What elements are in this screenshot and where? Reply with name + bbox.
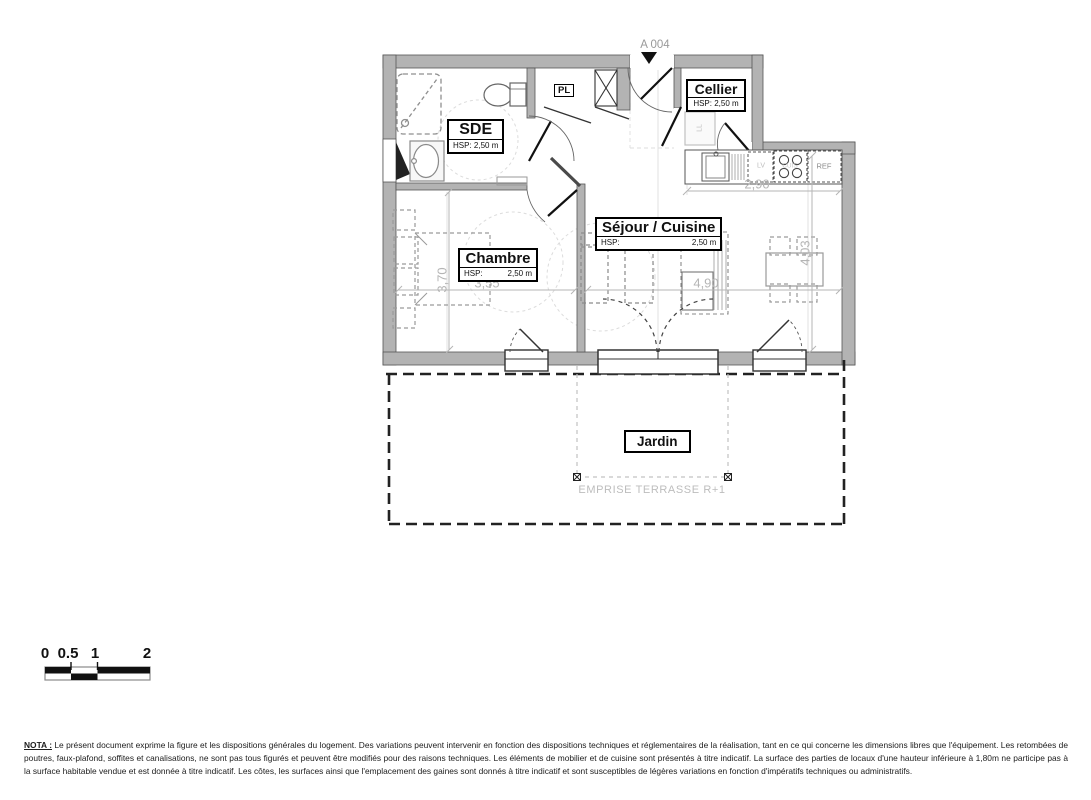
- room-name-sde: SDE: [449, 121, 502, 139]
- cooktop-label: CUIS: [782, 163, 798, 170]
- duct-shaft: [595, 70, 617, 106]
- sde-door: [529, 116, 574, 161]
- jardin-boundary: [386, 360, 845, 524]
- floor-plan-drawing: [0, 0, 1091, 800]
- walls: [383, 55, 855, 365]
- hsp-key-chambre: HSP:: [464, 269, 483, 279]
- room-label-chambre: Chambre HSP: 2,50 m: [458, 248, 538, 282]
- hsp-val-sejour: 2,50 m: [692, 238, 716, 248]
- scale-label-0: 0: [41, 645, 49, 662]
- dim-kitchen-width: 2,90: [744, 177, 769, 192]
- room-name-sejour: Séjour / Cuisine: [597, 219, 720, 236]
- hsp-key-sejour: HSP:: [601, 238, 620, 248]
- room-name-cellier: Cellier: [688, 81, 744, 97]
- dim-chambre-depth: 3,70: [435, 267, 450, 292]
- nota-body: Le présent document exprime la figure et…: [24, 740, 1068, 776]
- floor-plan-page: A 004 SDE HSP: 2,50 m Cellier HSP: 2,50 …: [0, 0, 1091, 800]
- dining-table: [766, 237, 823, 302]
- terrace-note: EMPRISE TERRASSE R+1: [578, 484, 725, 496]
- scale-label-1: 1: [91, 645, 99, 662]
- room-name-chambre: Chambre: [460, 250, 536, 267]
- closet-doors: [544, 107, 629, 123]
- room-hsp-sde: HSP: 2,50 m: [449, 139, 502, 152]
- dim-sejour-width: 4,90: [693, 276, 718, 291]
- room-label-sde: SDE HSP: 2,50 m: [447, 119, 504, 154]
- entrance-door: [628, 55, 674, 112]
- shower: [397, 74, 441, 134]
- fridge-label: REF: [817, 162, 832, 171]
- toilet: [484, 83, 526, 106]
- room-label-sejour: Séjour / Cuisine HSP: 2,50 m: [595, 217, 722, 251]
- kitchen-door: [717, 123, 752, 154]
- room-hsp-cellier: HSP: 2,50 m: [688, 97, 744, 110]
- sde-wall-window: [383, 139, 410, 182]
- dim-sejour-depth: 4,03: [798, 240, 813, 265]
- scale-label-2: 2: [143, 645, 151, 662]
- scale-label-05: 0.5: [58, 645, 79, 662]
- cellier-door: [662, 107, 681, 148]
- hsp-val-chambre: 2,50 m: [508, 269, 532, 279]
- room-label-cellier: Cellier HSP: 2,50 m: [686, 79, 746, 112]
- closet-label: PL: [554, 84, 574, 97]
- washer-label: LL: [697, 124, 704, 132]
- dishwasher-label: LV: [757, 163, 765, 170]
- scale-bar-graphic: [45, 662, 150, 680]
- terrace-footprint: [577, 366, 728, 477]
- chambre-window: [505, 329, 548, 371]
- bathroom-sink: [410, 141, 444, 181]
- sejour-window: [753, 320, 806, 371]
- room-label-jardin: Jardin: [624, 430, 691, 453]
- nota-text: NOTA : Le présent document exprime la fi…: [24, 739, 1068, 779]
- chambre-door: [527, 190, 577, 222]
- angled-walls: [551, 158, 580, 186]
- nota-title: NOTA :: [24, 740, 52, 750]
- unit-reference: A 004: [640, 39, 669, 51]
